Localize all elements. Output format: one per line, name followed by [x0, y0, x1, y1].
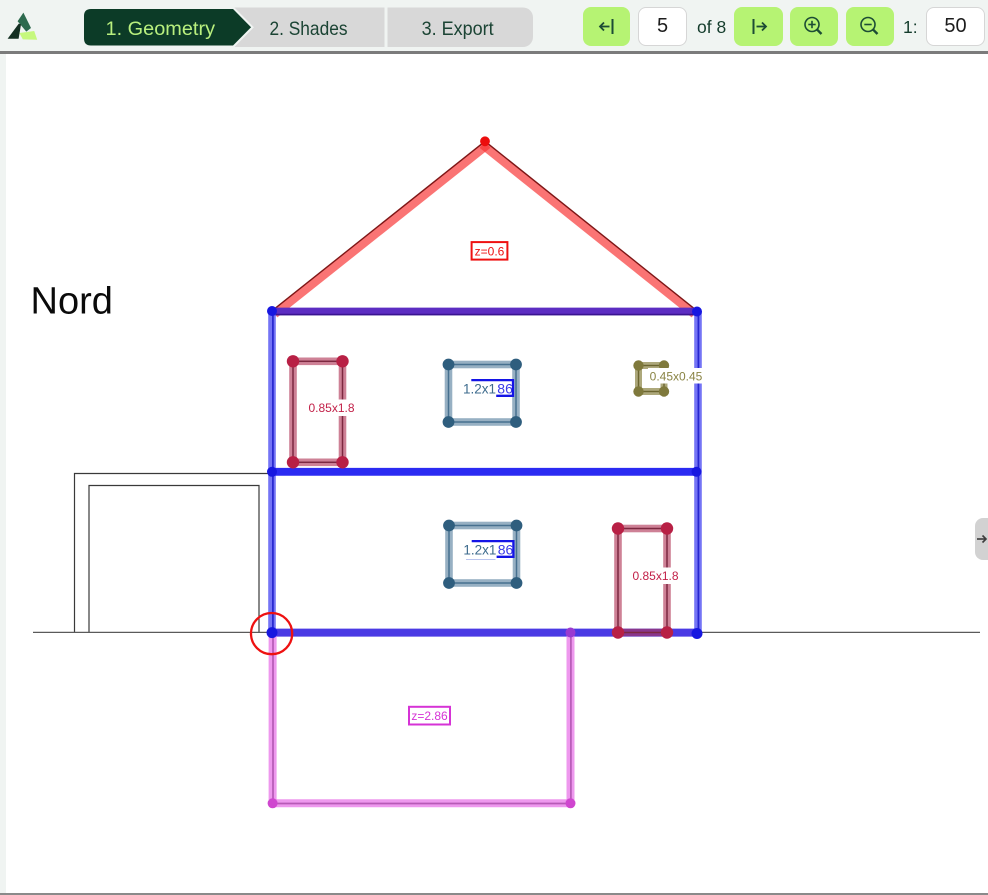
- svg-text:0.45x0.45: 0.45x0.45: [650, 370, 703, 384]
- svg-text:2. Shades: 2. Shades: [270, 18, 348, 40]
- svg-text:1.2x1: 1.2x1: [463, 382, 496, 397]
- svg-text:1.2x1: 1.2x1: [463, 543, 496, 558]
- svg-text:0.85x1.8: 0.85x1.8: [308, 401, 354, 415]
- svg-text:Nord: Nord: [31, 281, 113, 323]
- svg-text:86: 86: [497, 381, 513, 397]
- svg-text:z=2.86: z=2.86: [411, 709, 448, 723]
- svg-text:1. Geometry: 1. Geometry: [106, 18, 216, 40]
- svg-text:86: 86: [498, 542, 514, 558]
- svg-text:0.85x1.8: 0.85x1.8: [632, 569, 678, 583]
- svg-text:3. Export: 3. Export: [422, 18, 495, 40]
- svg-text:z=0.6: z=0.6: [475, 244, 505, 258]
